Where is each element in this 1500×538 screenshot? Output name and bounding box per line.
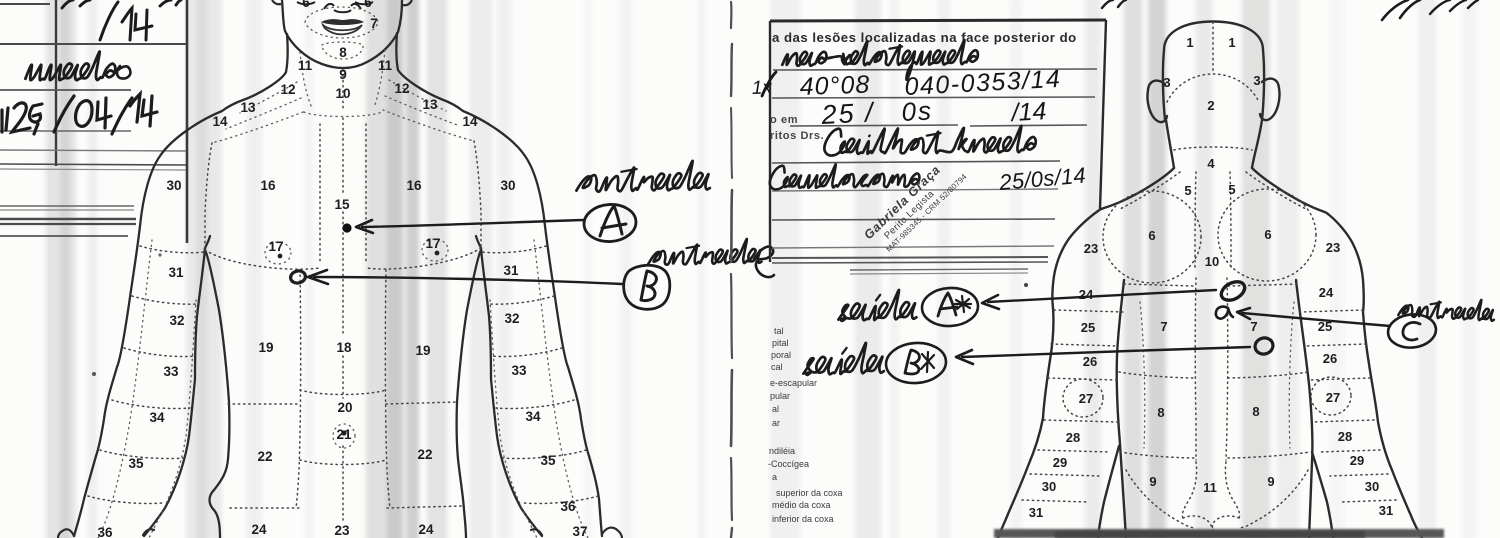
svg-text:32: 32 <box>504 311 519 326</box>
svg-text:ar: ar <box>772 418 780 428</box>
svg-text:6: 6 <box>1264 227 1271 242</box>
svg-text:25: 25 <box>1081 320 1095 335</box>
svg-text:25 /: 25 / <box>820 97 876 130</box>
svg-text:1: 1 <box>1228 35 1235 50</box>
svg-text:34: 34 <box>525 409 541 424</box>
svg-text:35: 35 <box>128 456 144 471</box>
svg-text:al: al <box>772 404 779 414</box>
svg-text:tal: tal <box>774 326 784 336</box>
svg-text:32: 32 <box>169 313 184 328</box>
svg-text:a das lesões localizadas na fa: a das lesões localizadas na face posteri… <box>772 30 1077 45</box>
svg-text:12: 12 <box>280 82 295 97</box>
svg-text:6: 6 <box>364 0 372 10</box>
svg-text:12: 12 <box>394 81 409 96</box>
svg-text:ritos Drs.: ritos Drs. <box>770 130 824 142</box>
svg-text:ndiléia: ndiléia <box>769 446 795 456</box>
svg-text:11: 11 <box>378 58 393 73</box>
svg-text:8: 8 <box>1252 404 1259 419</box>
svg-text:40°08: 40°08 <box>799 71 871 101</box>
svg-text:7: 7 <box>1160 319 1167 334</box>
svg-text:23: 23 <box>1084 241 1098 256</box>
svg-text:médio da coxa: médio da coxa <box>772 500 831 510</box>
svg-text:19: 19 <box>258 340 273 355</box>
svg-text:pital: pital <box>772 338 789 348</box>
svg-text:29: 29 <box>1053 455 1067 470</box>
svg-text:/14: /14 <box>1009 97 1047 127</box>
svg-text:5: 5 <box>1228 182 1235 197</box>
svg-text:30: 30 <box>166 178 181 193</box>
svg-text:24: 24 <box>1079 287 1094 302</box>
svg-text:16: 16 <box>260 178 276 193</box>
svg-text:37: 37 <box>572 524 587 538</box>
svg-text:13: 13 <box>240 100 256 115</box>
svg-text:33: 33 <box>511 363 527 378</box>
svg-text:29: 29 <box>1350 453 1364 468</box>
svg-text:23: 23 <box>1326 240 1340 255</box>
svg-text:22: 22 <box>257 449 272 464</box>
svg-text:8: 8 <box>339 45 347 60</box>
svg-text:26: 26 <box>1083 354 1097 369</box>
svg-text:23: 23 <box>334 523 350 538</box>
svg-text:3: 3 <box>1253 73 1260 88</box>
svg-text:0ѕ: 0ѕ <box>901 95 934 127</box>
svg-text:33: 33 <box>163 364 179 379</box>
svg-text:17: 17 <box>268 239 283 254</box>
svg-text:9: 9 <box>1267 474 1274 489</box>
svg-text:21: 21 <box>336 427 352 442</box>
svg-text:27: 27 <box>1326 390 1340 405</box>
svg-text:1х: 1х <box>751 77 773 99</box>
svg-text:18: 18 <box>336 340 352 355</box>
svg-text:31: 31 <box>1379 503 1393 518</box>
svg-text:6: 6 <box>302 0 310 10</box>
svg-text:36: 36 <box>560 499 576 514</box>
svg-text:34: 34 <box>149 410 165 425</box>
svg-text:11: 11 <box>298 58 313 73</box>
svg-text:20: 20 <box>337 400 352 415</box>
svg-text:7: 7 <box>1250 319 1257 334</box>
svg-text:30: 30 <box>1365 479 1379 494</box>
svg-text:4: 4 <box>1207 156 1215 171</box>
svg-text:30: 30 <box>1042 479 1056 494</box>
svg-text:inferior da coxa: inferior da coxa <box>772 514 834 524</box>
svg-text:10: 10 <box>1205 254 1219 269</box>
svg-text:19: 19 <box>415 343 430 358</box>
svg-text:31: 31 <box>503 263 519 278</box>
svg-text:28: 28 <box>1066 430 1080 445</box>
svg-text:22: 22 <box>417 447 432 462</box>
svg-text:30: 30 <box>500 178 515 193</box>
svg-text:-Coccígea: -Coccígea <box>768 459 809 469</box>
svg-text:36: 36 <box>97 525 113 538</box>
svg-text:8: 8 <box>1157 405 1164 420</box>
svg-text:10: 10 <box>335 86 350 101</box>
svg-text:13: 13 <box>422 97 438 112</box>
svg-text:14: 14 <box>462 114 478 129</box>
svg-text:35: 35 <box>540 453 556 468</box>
svg-text:superior da coxa: superior da coxa <box>776 488 843 498</box>
svg-text:24: 24 <box>1319 285 1334 300</box>
svg-text:14: 14 <box>212 114 228 129</box>
svg-text:24: 24 <box>251 522 267 537</box>
svg-text:26: 26 <box>1323 351 1337 366</box>
svg-text:16: 16 <box>406 178 422 193</box>
svg-text:31: 31 <box>168 265 184 280</box>
svg-text:15: 15 <box>334 197 350 212</box>
svg-text:3: 3 <box>1163 75 1170 90</box>
svg-text:7: 7 <box>370 16 378 31</box>
svg-text:1: 1 <box>1186 35 1193 50</box>
svg-text:o em: o em <box>770 114 798 126</box>
svg-text:2: 2 <box>1207 98 1214 113</box>
svg-text:6: 6 <box>1148 228 1155 243</box>
svg-text:cal: cal <box>771 362 783 372</box>
svg-text:31: 31 <box>1029 505 1043 520</box>
svg-text:poral: poral <box>771 350 791 360</box>
svg-text:9: 9 <box>339 67 347 82</box>
svg-text:11: 11 <box>1203 480 1217 495</box>
svg-text:e-escapular: e-escapular <box>770 378 817 388</box>
svg-text:a: a <box>772 472 777 482</box>
svg-text:17: 17 <box>425 236 440 251</box>
svg-text:9: 9 <box>1149 474 1156 489</box>
svg-text:28: 28 <box>1338 429 1352 444</box>
svg-text:5: 5 <box>1184 183 1191 198</box>
svg-text:27: 27 <box>1079 391 1093 406</box>
svg-text:24: 24 <box>418 522 434 537</box>
svg-text:pular: pular <box>770 391 790 401</box>
